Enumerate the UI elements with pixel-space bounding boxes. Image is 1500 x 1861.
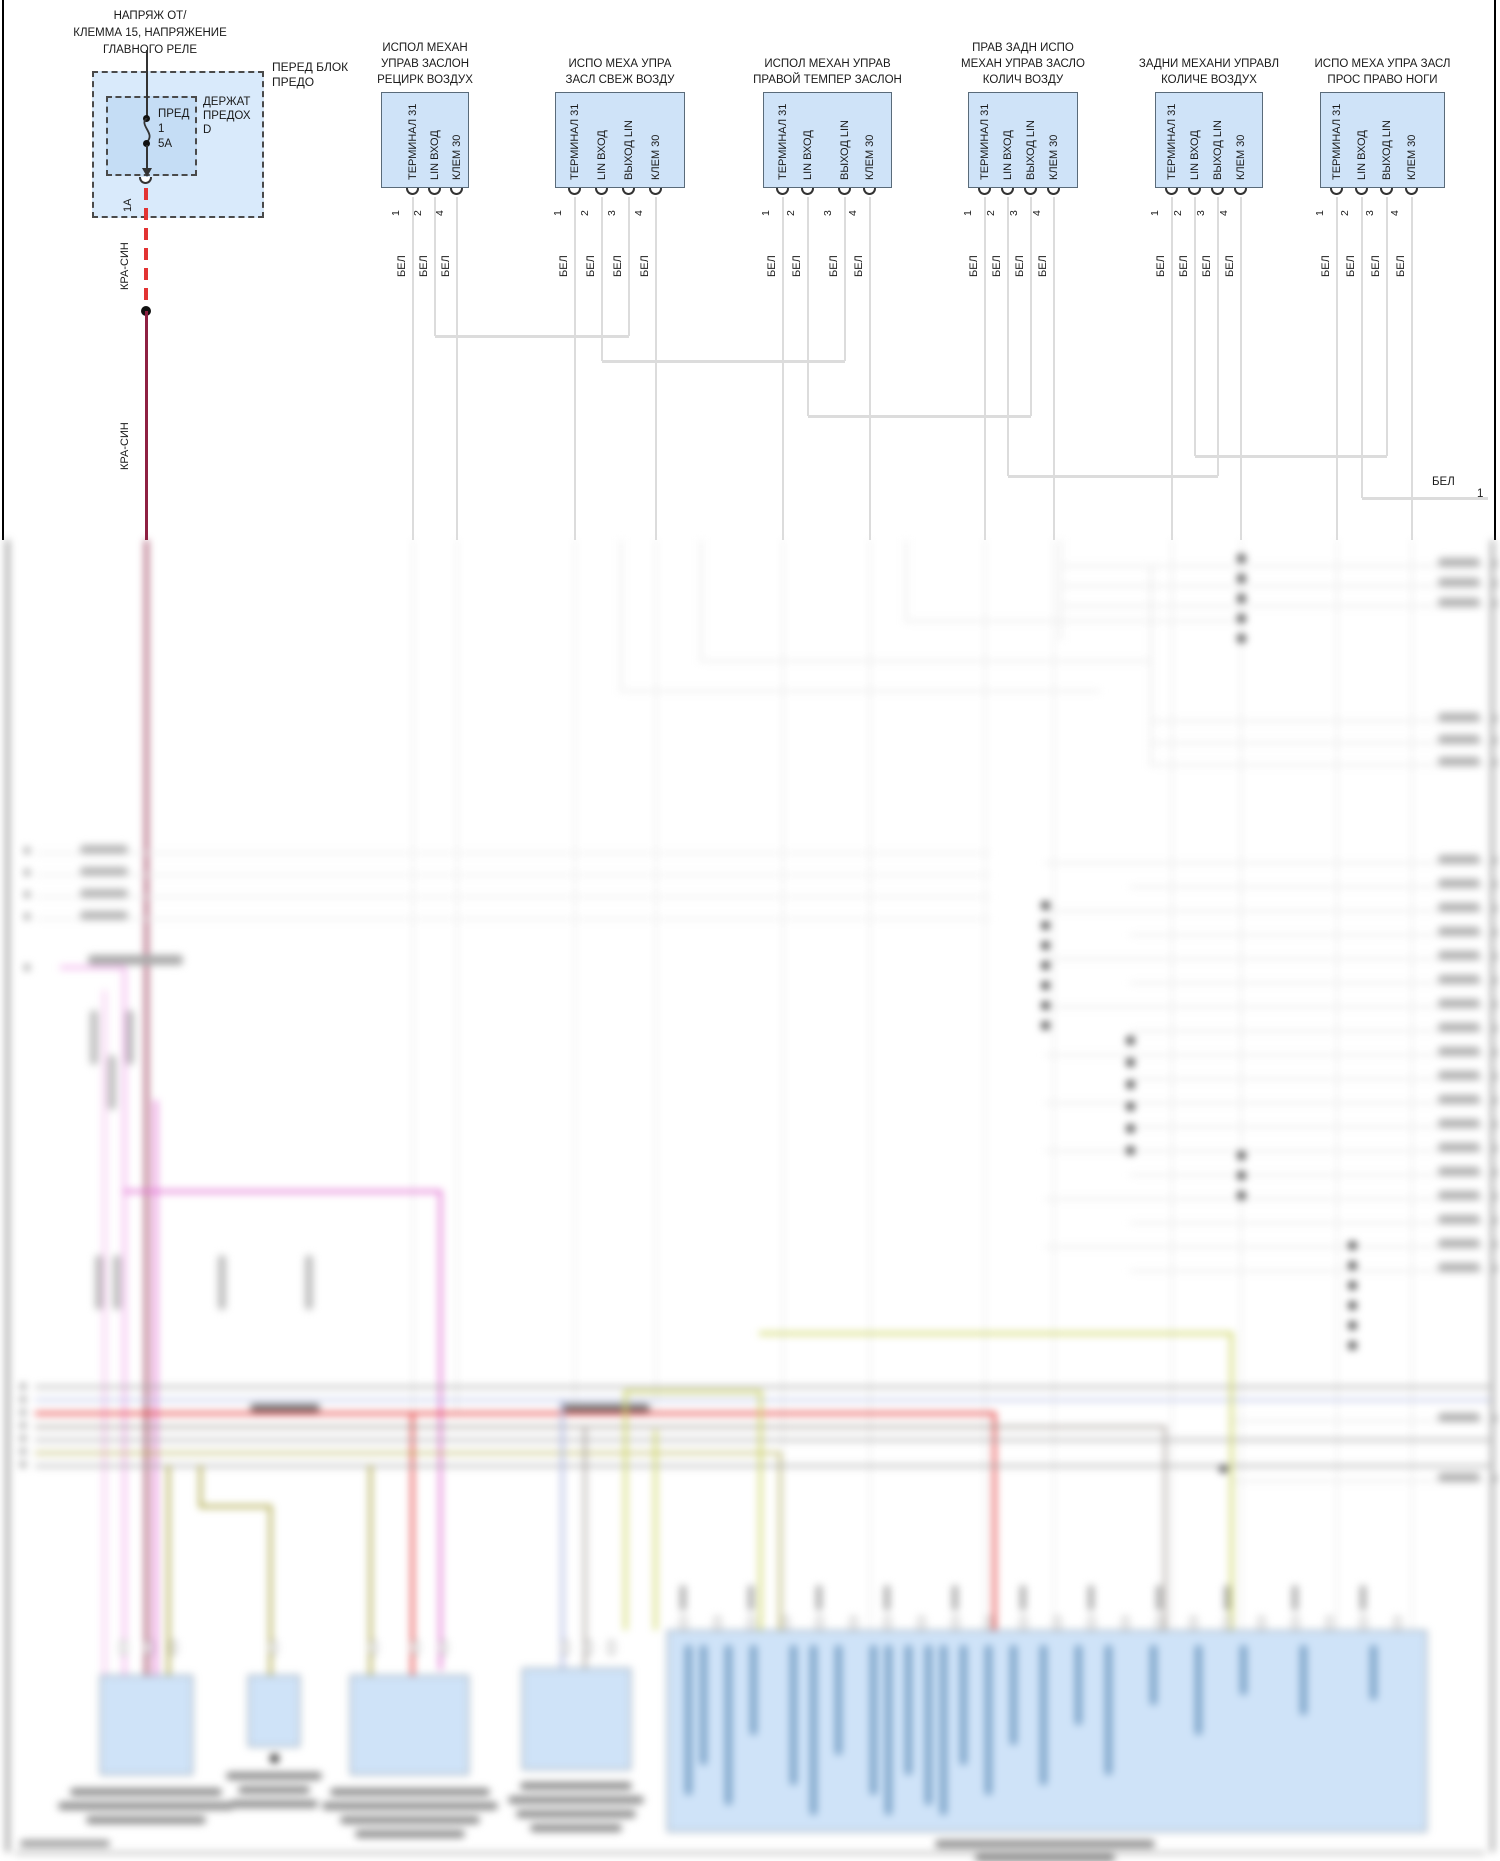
blurred-splice-dot	[1237, 614, 1246, 623]
wire-color-label: БЕЛ	[968, 255, 980, 277]
blurred-wire	[1130, 982, 1488, 984]
pin-number: 1	[390, 210, 402, 216]
blurred-module-text-strip	[1150, 1645, 1157, 1705]
blurred-diagram-section	[0, 540, 1500, 1861]
blurred-module-text-strip	[750, 1645, 757, 1735]
blurred-splice-dot	[1126, 1102, 1135, 1111]
actuator-title-6: ИСПО МЕХА УПРА ЗАСЛ ПРОС ПРАВО НОГИ	[1268, 32, 1498, 88]
blurred-text-blob	[340, 1816, 480, 1824]
wire-segment	[456, 197, 459, 540]
blurred-wire	[145, 540, 148, 1675]
pin-socket	[838, 188, 851, 195]
blurred-splice-dot	[1126, 1124, 1135, 1133]
blurred-text-blob	[1492, 881, 1497, 888]
blurred-wire	[1150, 742, 1488, 744]
blurred-splice-dot	[1126, 1036, 1135, 1045]
pin-label: КЛЕМ 30	[650, 135, 662, 180]
blurred-text-blob	[1492, 1073, 1497, 1080]
blurred-text-blob	[975, 1854, 1115, 1861]
wire-segment	[1336, 197, 1339, 540]
blurred-module-text-strip	[1105, 1645, 1112, 1775]
blurred-wire	[199, 1465, 202, 1507]
pin-socket	[1024, 188, 1037, 195]
blurred-module-text-strip	[1300, 1645, 1307, 1715]
blurred-text-blob	[1492, 1241, 1497, 1248]
blurred-module-text-strip	[1040, 1645, 1047, 1785]
blurred-text-blob	[322, 1802, 498, 1810]
wire-segment	[807, 197, 810, 416]
blurred-module-text-strip	[985, 1645, 992, 1795]
wire-segment	[1194, 197, 1197, 456]
pin-socket	[568, 188, 581, 195]
blurred-text-blob	[226, 1772, 322, 1780]
pin-socket	[622, 188, 635, 195]
pin-label: LIN ВХОД	[802, 130, 814, 180]
page-border-left	[2, 0, 4, 540]
blurred-text-blob	[1438, 1047, 1480, 1056]
blurred-wire	[35, 1399, 1490, 1401]
blurred-text-blob	[24, 869, 30, 876]
blurred-module-text-strip	[1240, 1645, 1247, 1695]
pin-label: КЛЕМ 30	[1048, 135, 1060, 180]
pin-number: 4	[847, 210, 859, 216]
blurred-text-blob	[1438, 1191, 1480, 1200]
wire-segment	[1217, 197, 1220, 476]
blurred-wire	[655, 540, 658, 1412]
blurred-connector-pin	[1190, 1616, 1197, 1631]
wire-color-label: БЕЛ	[1037, 255, 1049, 277]
blurred-module-text-strip	[790, 1645, 797, 1785]
wire-segment	[808, 415, 1031, 418]
blurred-wire	[35, 918, 990, 920]
blurred-wire	[1150, 764, 1488, 766]
wire-segment	[1171, 197, 1174, 540]
pin-socket	[595, 188, 608, 195]
pin-label: LIN ВХОД	[1189, 130, 1201, 180]
blurred-text-blob	[952, 1585, 958, 1611]
blurred-text-blob	[305, 1255, 313, 1310]
blurred-connector-pin	[850, 1616, 857, 1631]
blurred-text-blob	[1292, 1585, 1298, 1611]
blurred-text-blob	[1438, 578, 1480, 587]
pin-label: КЛЕМ 30	[864, 135, 876, 180]
blurred-text-blob	[1438, 1143, 1480, 1152]
blurred-connector-pin	[952, 1616, 959, 1631]
pin-number: 1	[1149, 210, 1161, 216]
pin-number: 3	[1195, 210, 1207, 216]
blurred-component-box-d	[522, 1668, 631, 1770]
blurred-wire	[620, 540, 622, 690]
blurred-wire	[1045, 1102, 1488, 1104]
blurred-text-blob	[1438, 1263, 1480, 1272]
wire-kra-sin-dashed	[144, 188, 148, 308]
blurred-text-blob	[24, 913, 30, 920]
blurred-connector-pin	[170, 1640, 177, 1655]
wire-color-label: БЕЛ	[585, 255, 597, 277]
blurred-text-blob	[80, 845, 128, 854]
blurred-text-blob	[1438, 951, 1480, 960]
blurred-wire	[1130, 1030, 1488, 1032]
blurred-text-blob	[108, 1055, 116, 1110]
blurred-wire	[35, 874, 990, 876]
blurred-text-blob	[530, 1824, 622, 1832]
pin-socket	[1405, 188, 1418, 195]
wire-color-label: БЕЛ	[612, 255, 624, 277]
blurred-component-box-b	[248, 1675, 300, 1747]
blurred-text-blob	[24, 964, 30, 971]
pin-label: ТЕРМИНАЛ 31	[1331, 104, 1343, 180]
blurred-module-text-strip	[685, 1645, 692, 1795]
blurred-module-text-strip	[940, 1645, 947, 1815]
wire-label-kra-sin-lower: КРА-СИН	[119, 422, 131, 470]
blurred-text-blob	[20, 1448, 26, 1455]
blurred-text-blob	[1492, 857, 1497, 864]
blurred-connector-pin	[1292, 1616, 1299, 1631]
blurred-wire	[1045, 1006, 1488, 1008]
pin-socket	[649, 188, 662, 195]
pin-number: 3	[1364, 210, 1376, 216]
blurred-text-blob	[250, 1404, 320, 1412]
exit-wire-pin-number: 1	[1477, 488, 1483, 500]
blurred-splice-dot	[1041, 921, 1050, 930]
blurred-text-blob	[1492, 977, 1497, 984]
blurred-splice-dot	[1237, 574, 1246, 583]
blurred-text-blob	[1438, 903, 1480, 912]
wire-segment	[1362, 497, 1488, 500]
pin-number: 1	[760, 210, 772, 216]
blurred-text-blob	[20, 1396, 26, 1403]
pin-number: 1	[1314, 210, 1326, 216]
blurred-connector-pin	[585, 1640, 592, 1655]
blurred-module-text-strip	[1370, 1645, 1377, 1700]
blurred-connector-pin	[440, 1640, 447, 1655]
blurred-text-blob	[1438, 1071, 1480, 1080]
wire-segment	[1007, 197, 1010, 476]
blurred-text-blob	[20, 1840, 110, 1847]
wire-segment	[655, 197, 658, 540]
pin-label: ТЕРМИНАЛ 31	[407, 104, 419, 180]
wire-color-label: БЕЛ	[396, 255, 408, 277]
blurred-text-blob	[20, 1383, 26, 1390]
wire-segment	[1361, 197, 1364, 498]
wire-segment	[1030, 197, 1033, 416]
blurred-text-blob	[20, 1435, 26, 1442]
blurred-connector-pin	[1394, 1616, 1401, 1631]
wire-color-label: БЕЛ	[791, 255, 803, 277]
fuse-rating: 5А	[158, 138, 172, 150]
wire-segment	[1411, 197, 1414, 540]
blurred-wire	[1130, 1126, 1488, 1128]
blurred-splice-dot	[1237, 554, 1246, 563]
fuse-output-pin-label: 1А	[122, 199, 134, 212]
wire-segment	[434, 197, 437, 336]
blurred-splice-dot	[1348, 1241, 1357, 1250]
wire-color-label: БЕЛ	[1224, 255, 1236, 277]
pin-number: 3	[606, 210, 618, 216]
pin-label: ВЫХОД LIN	[623, 120, 635, 180]
fuse-out-wire	[146, 145, 148, 168]
blurred-splice-dot	[1126, 1058, 1135, 1067]
blurred-connector-pin	[1156, 1616, 1163, 1631]
pin-label: ТЕРМИНАЛ 31	[569, 104, 581, 180]
fuse-name: ПРЕД	[158, 108, 189, 120]
pin-number: 4	[633, 210, 645, 216]
blurred-text-blob	[1020, 1585, 1026, 1611]
blurred-text-blob	[1492, 759, 1497, 766]
blurred-wire	[35, 1386, 1490, 1388]
wire-segment	[1053, 197, 1056, 540]
pin-label: ТЕРМИНАЛ 31	[1166, 104, 1178, 180]
blurred-text-blob	[24, 847, 30, 854]
blurred-wire	[35, 1439, 1490, 1441]
wire-color-label: БЕЛ	[1201, 255, 1213, 277]
blurred-text-blob	[1438, 879, 1480, 888]
pin-label: ВЫХОД LIN	[1025, 120, 1037, 180]
blurred-wire	[456, 540, 459, 1412]
blurred-text-blob	[1438, 757, 1480, 766]
wire-color-label: БЕЛ	[1178, 255, 1190, 277]
blurred-module-text-strip	[905, 1645, 912, 1775]
blurred-text-blob	[1438, 1023, 1480, 1032]
wire-color-label: БЕЛ	[639, 255, 651, 277]
blurred-module-text-strip	[700, 1645, 707, 1765]
blurred-wire	[103, 990, 106, 1675]
blurred-wire	[759, 1332, 1232, 1335]
blurred-text-blob	[1438, 713, 1480, 722]
pin-label: LIN ВХОД	[1356, 130, 1368, 180]
blurred-text-blob	[88, 955, 183, 965]
blurred-wire	[1130, 934, 1488, 936]
blurred-text-blob	[113, 1255, 121, 1310]
blurred-splice-dot	[1348, 1301, 1357, 1310]
blurred-splice-dot	[1237, 634, 1246, 643]
blurred-module-text-strip	[960, 1645, 967, 1765]
blurred-wire	[574, 540, 577, 1412]
pin-number: 2	[579, 210, 591, 216]
blurred-wire	[1150, 565, 1152, 765]
blurred-text-blob	[516, 1810, 636, 1818]
wire-segment	[1386, 197, 1389, 456]
blurred-wire	[654, 1430, 657, 1630]
blurred-text-blob	[1492, 1049, 1497, 1056]
pin-label: ВЫХОД LIN	[1381, 120, 1393, 180]
blurred-connector-pin	[562, 1640, 569, 1655]
blurred-text-blob	[1492, 1415, 1497, 1422]
blurred-splice-dot	[1041, 941, 1050, 950]
pin-socket	[1047, 188, 1060, 195]
pin-label: LIN ВХОД	[596, 130, 608, 180]
wire-segment	[574, 197, 577, 540]
blurred-module-text-strip	[725, 1645, 732, 1805]
blurred-text-blob	[218, 1255, 226, 1310]
blurred-text-blob	[24, 891, 30, 898]
blurred-text-blob	[1492, 905, 1497, 912]
blurred-text-blob	[1438, 1167, 1480, 1176]
fuse-lead-wire	[146, 50, 148, 118]
blurred-text-blob	[1156, 1585, 1162, 1611]
pin-socket	[1165, 188, 1178, 195]
pin-socket	[450, 188, 463, 195]
blurred-connector-pin	[270, 1640, 277, 1655]
blurred-wire	[439, 1190, 442, 1670]
blurred-module-text-strip	[835, 1645, 842, 1755]
blurred-wire	[1130, 886, 1488, 888]
blurred-text-blob	[126, 1010, 134, 1065]
blurred-connector-pin	[1224, 1616, 1231, 1631]
blurred-wire	[1045, 862, 1488, 864]
blurred-text-blob	[1438, 598, 1480, 607]
blurred-wire	[905, 540, 907, 620]
blurred-splice-dot	[1348, 1341, 1357, 1350]
blurred-connector-pin	[782, 1616, 789, 1631]
blurred-text-blob	[58, 1802, 234, 1810]
blurred-text-blob	[1438, 927, 1480, 936]
blurred-text-blob	[1492, 1169, 1497, 1176]
wire-color-label: БЕЛ	[828, 255, 840, 277]
pin-number: 1	[962, 210, 974, 216]
blurred-connector-pin	[748, 1616, 755, 1631]
blurred-text-blob	[1492, 1025, 1497, 1032]
blurred-wire	[1045, 1150, 1488, 1152]
blurred-wire	[1045, 1054, 1488, 1056]
wire-color-label: БЕЛ	[1345, 255, 1357, 277]
pin-socket	[428, 188, 441, 195]
blurred-connector-pin	[714, 1616, 721, 1631]
fuse-holder-label: ДЕРЖАТ ПРЕДОХ D	[203, 95, 251, 137]
pin-label: ВЫХОД LIN	[1212, 120, 1224, 180]
blurred-text-blob	[520, 1782, 632, 1790]
blurred-text-blob	[230, 1800, 318, 1808]
blurred-text-blob	[1492, 1145, 1497, 1152]
blurred-text-blob	[508, 1796, 644, 1804]
blurred-splice-dot	[1041, 981, 1050, 990]
blurred-text-blob	[1438, 975, 1480, 984]
wire-label-kra-sin-upper: КРА-СИН	[119, 242, 131, 290]
blurred-wire	[1130, 1270, 1488, 1272]
blurred-splice-dot	[1041, 901, 1050, 910]
blurred-text-blob	[330, 1788, 490, 1796]
blurred-wire	[905, 620, 1245, 622]
blurred-connector-pin	[884, 1616, 891, 1631]
blurred-wire	[1060, 540, 1062, 640]
blurred-text-blob	[1492, 580, 1497, 587]
blurred-connector-pin	[146, 1640, 153, 1655]
pin-label: КЛЕМ 30	[1406, 135, 1418, 180]
blurred-text-blob	[80, 911, 128, 920]
blurred-text-blob	[1360, 1585, 1366, 1611]
blurred-connector-pin	[918, 1616, 925, 1631]
blurred-wire	[1130, 1174, 1488, 1176]
blurred-text-blob	[1438, 1473, 1480, 1482]
blurred-text-blob	[560, 1404, 650, 1412]
blurred-connector-pin	[986, 1616, 993, 1631]
blurred-text-blob	[748, 1585, 754, 1611]
blurred-module-text-strip	[885, 1645, 892, 1815]
wire-color-label: БЕЛ	[1395, 255, 1407, 277]
actuator-title-2: ИСПО МЕХА УПРА ЗАСЛ СВЕЖ ВОЗДУ	[505, 32, 735, 88]
blurred-splice-dot	[1237, 1171, 1246, 1180]
pin-number: 4	[1218, 210, 1230, 216]
blurred-text-blob	[1492, 1265, 1497, 1272]
blurred-text-blob	[90, 1010, 98, 1065]
exit-wire-color-label: БЕЛ	[1432, 476, 1455, 488]
blurred-connector-pin	[680, 1616, 687, 1631]
blurred-text-blob	[1492, 929, 1497, 936]
blurred-module-text-strip	[1195, 1645, 1202, 1735]
blurred-text-blob	[816, 1585, 822, 1611]
wire-color-label: БЕЛ	[418, 255, 430, 277]
wire-color-label: БЕЛ	[558, 255, 570, 277]
blurred-wire	[123, 1190, 441, 1193]
blurred-module-text-strip	[1075, 1645, 1082, 1725]
blurred-wire	[1045, 910, 1488, 912]
blurred-wire	[1045, 1246, 1488, 1248]
wire-color-label: БЕЛ	[1370, 255, 1382, 277]
blurred-wire	[35, 1465, 1490, 1467]
wire-segment	[1240, 197, 1243, 540]
blurred-splice-dot	[1348, 1261, 1357, 1270]
blurred-splice-dot	[1041, 1021, 1050, 1030]
blurred-text-blob	[1492, 1475, 1497, 1482]
blurred-text-blob	[680, 1585, 686, 1611]
blurred-wire	[35, 896, 990, 898]
blurred-connector-pin	[412, 1640, 419, 1655]
pin-number: 2	[785, 210, 797, 216]
blurred-text-blob	[355, 1830, 465, 1838]
wire-segment	[602, 360, 845, 363]
blurred-wire	[1130, 1222, 1488, 1224]
blurred-component-box-c	[350, 1675, 469, 1775]
pin-socket	[1188, 188, 1201, 195]
wire-color-label: БЕЛ	[1155, 255, 1167, 277]
blurred-module-text-strip	[870, 1645, 877, 1795]
pin-label: ТЕРМИНАЛ 31	[979, 104, 991, 180]
blurred-text-blob	[1224, 1585, 1230, 1611]
blurred-wire	[35, 1452, 780, 1454]
blurred-text-blob	[1438, 1215, 1480, 1224]
blurred-module-text-strip	[925, 1645, 932, 1805]
blurred-text-blob	[1438, 855, 1480, 864]
pin-socket	[1211, 188, 1224, 195]
pin-socket	[1234, 188, 1247, 195]
blurred-wire	[700, 660, 1150, 662]
blurred-text-blob	[1492, 560, 1497, 567]
pin-socket	[406, 188, 419, 195]
blurred-splice-dot	[1126, 1146, 1135, 1155]
blurred-wire	[620, 690, 1100, 692]
pin-number: 2	[1172, 210, 1184, 216]
blurred-splice-dot	[1126, 1080, 1135, 1089]
wire-kra-sin-solid	[145, 311, 148, 540]
blurred-text-blob	[1088, 1585, 1094, 1611]
blurred-text-blob	[1492, 953, 1497, 960]
pin-number: 1	[552, 210, 564, 216]
blurred-wire	[759, 1390, 762, 1630]
blurred-wire	[1150, 720, 1488, 722]
blurred-text-blob	[1438, 558, 1480, 567]
blurred-connector-pin	[608, 1640, 615, 1655]
blurred-wire	[1130, 1078, 1488, 1080]
blurred-text-blob	[1492, 1217, 1497, 1224]
blurred-text-blob	[1438, 1413, 1480, 1422]
blurred-text-blob	[70, 1788, 222, 1796]
wire-color-label: БЕЛ	[1014, 255, 1026, 277]
blurred-text-blob	[80, 867, 128, 876]
blurred-wire	[1060, 585, 1488, 587]
blurred-splice-dot	[1041, 961, 1050, 970]
blurred-wire	[624, 1390, 761, 1393]
wire-segment	[869, 197, 872, 540]
